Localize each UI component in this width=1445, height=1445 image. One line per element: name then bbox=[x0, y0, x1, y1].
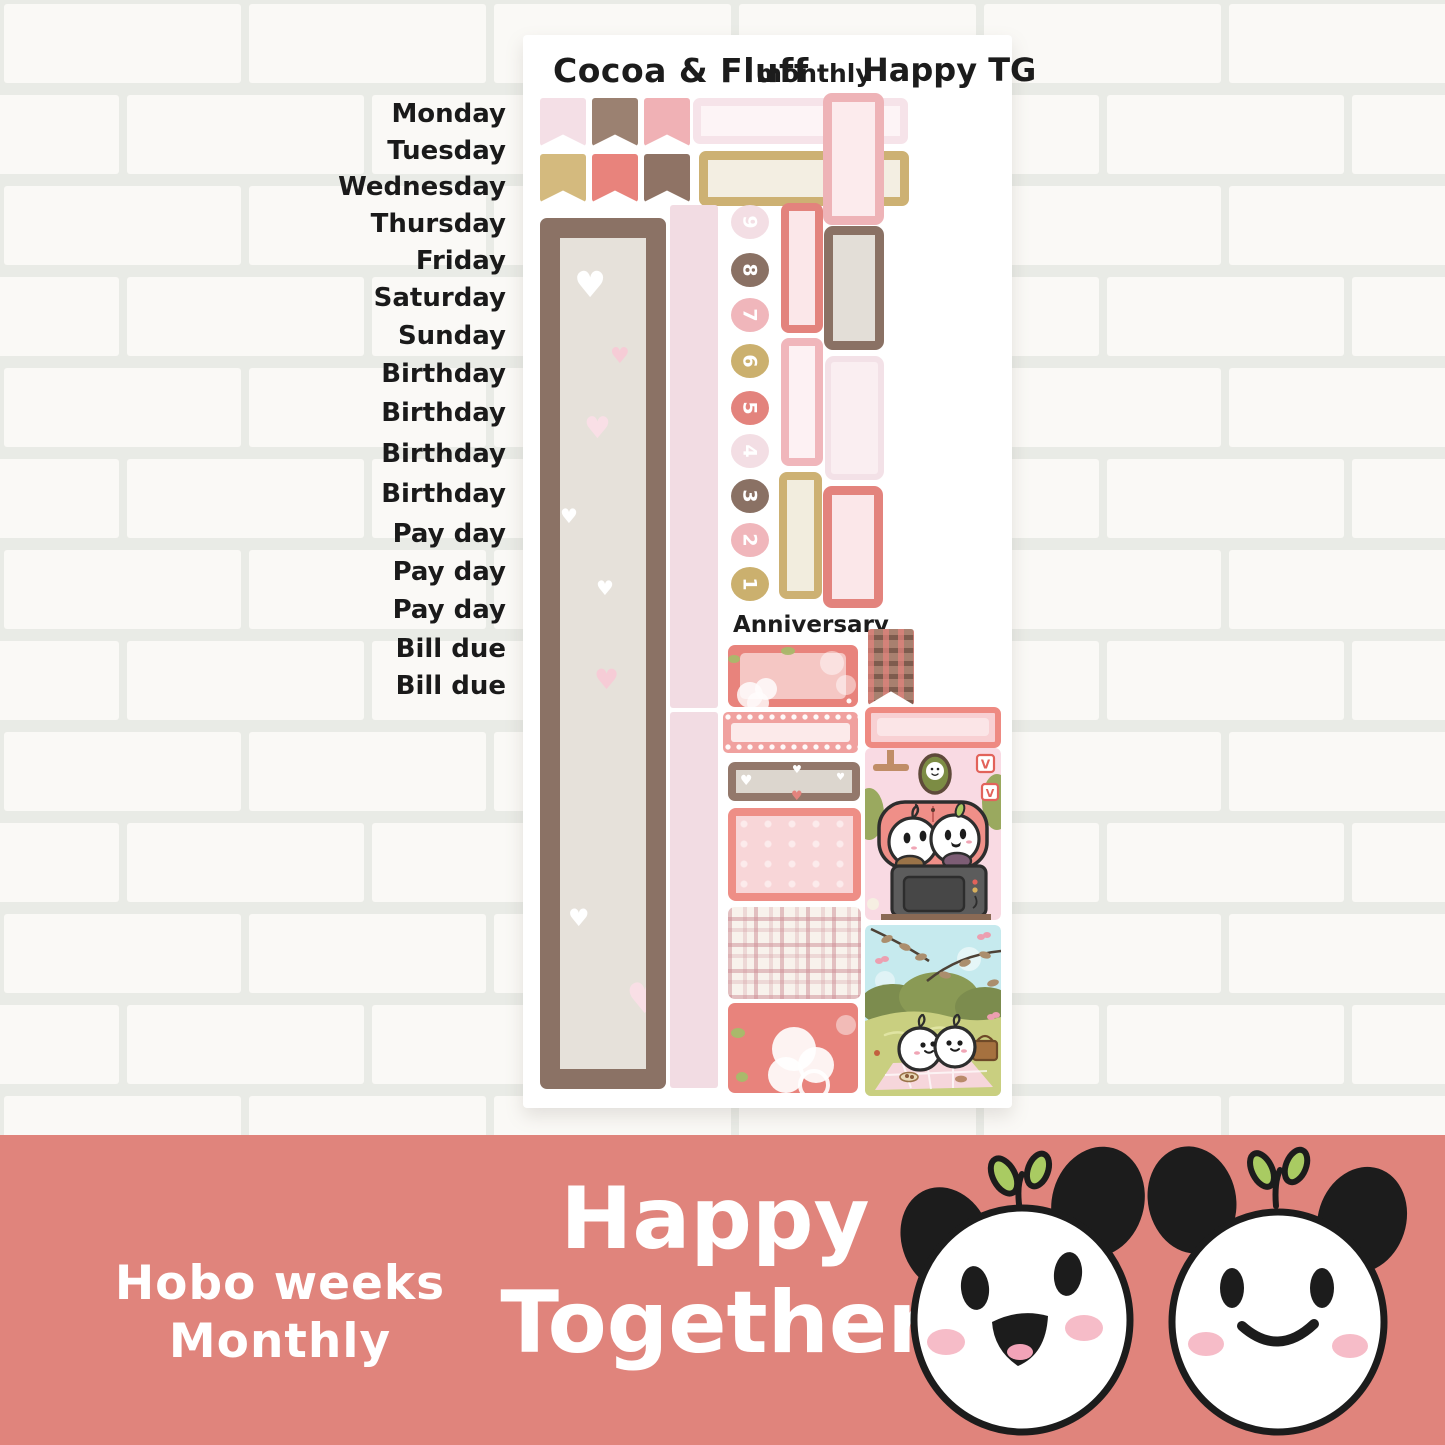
heart-icon: ♥ bbox=[836, 773, 845, 783]
lace-trim bbox=[723, 743, 858, 752]
sheet-kit-type: monthly bbox=[756, 59, 872, 88]
sprout-icon bbox=[1245, 1149, 1279, 1190]
day-script-sticker: Wednesday bbox=[338, 172, 506, 202]
date-dot-number: 7 bbox=[739, 308, 761, 321]
vertical-box-sticker-pale bbox=[825, 356, 884, 480]
date-dot-sticker: 8 bbox=[731, 253, 769, 287]
flower-box-sticker-top bbox=[728, 645, 858, 707]
heart-icon: ♥ bbox=[791, 790, 803, 803]
date-dot-sticker: 5 bbox=[731, 391, 769, 425]
date-dot-sticker: 3 bbox=[731, 479, 769, 513]
picnic-basket-icon bbox=[973, 1041, 997, 1060]
date-dot-number: 6 bbox=[739, 354, 761, 367]
day-script-sticker: Bill due bbox=[396, 634, 506, 664]
day-script-sticker: Birthday bbox=[381, 439, 506, 469]
tv-scene-sticker: V V bbox=[865, 748, 1001, 920]
plate-icon bbox=[900, 1073, 918, 1082]
food-icon bbox=[955, 1076, 967, 1083]
date-dot-number: 5 bbox=[739, 401, 761, 414]
plaid-box-sticker bbox=[728, 907, 861, 999]
date-dot-number: 8 bbox=[739, 263, 761, 276]
heart-icon: ♥ bbox=[574, 268, 606, 304]
day-script-sticker: Birthday bbox=[381, 359, 506, 389]
eye-icon bbox=[1310, 1268, 1334, 1308]
product-listing-image: { "sheet": { "brand": "Cocoa & Fluff", "… bbox=[0, 0, 1445, 1445]
heart-icon: ♥ bbox=[662, 762, 666, 786]
svg-text:V: V bbox=[986, 787, 995, 800]
flag-sticker bbox=[592, 98, 638, 146]
cheek-icon bbox=[1332, 1334, 1368, 1358]
day-script-sticker: Birthday bbox=[381, 398, 506, 428]
vertical-box-sticker-coral bbox=[823, 486, 883, 608]
vertical-box-sticker-brown bbox=[824, 226, 884, 350]
date-dot-sticker: 2 bbox=[731, 523, 769, 557]
flower-box-sticker-bottom bbox=[728, 1003, 858, 1093]
pink-strip-sticker-bottom bbox=[670, 712, 718, 1088]
panda-face-icon bbox=[885, 1140, 1158, 1432]
heart-icon: ♥ bbox=[560, 506, 578, 526]
sheet-theme-name: Happy TG bbox=[862, 51, 1036, 89]
day-script-sticker: Pay day bbox=[393, 557, 506, 587]
heart-icon: ♥ bbox=[610, 346, 630, 368]
slim-box-sticker-pink bbox=[781, 338, 823, 466]
food-icon bbox=[874, 1050, 880, 1056]
lace-box-inner bbox=[731, 723, 850, 742]
lace-box-sticker bbox=[723, 712, 858, 753]
day-script-sticker: Monday bbox=[391, 99, 506, 129]
panda-face-icon bbox=[1138, 1140, 1421, 1432]
lace-trim bbox=[723, 713, 858, 722]
day-script-sticker: Birthday bbox=[381, 479, 506, 509]
coral-floral-box-sticker bbox=[728, 808, 861, 901]
cheek-icon bbox=[1188, 1332, 1224, 1356]
heart-icon: ♥ bbox=[792, 764, 802, 775]
svg-text:V: V bbox=[981, 758, 991, 772]
heart-icon: ♥ bbox=[740, 774, 753, 788]
day-script-sticker: Sunday bbox=[398, 321, 506, 351]
flag-sticker bbox=[644, 98, 690, 146]
dotted-label-box-sticker bbox=[865, 707, 1001, 748]
flag-sticker bbox=[540, 98, 586, 146]
plaid-flag-sticker bbox=[868, 629, 914, 705]
date-dot-number: 2 bbox=[739, 533, 761, 546]
bottom-banner: Hobo weeks Monthly Happy Together bbox=[0, 1135, 1445, 1445]
date-dot-sticker: 6 bbox=[731, 344, 769, 378]
date-dot-number: 4 bbox=[739, 444, 761, 457]
kit-name-text: Hobo weeks Monthly bbox=[90, 1255, 470, 1371]
flower-icon bbox=[728, 1003, 858, 1093]
flag-sticker bbox=[540, 154, 586, 202]
slim-box-sticker-coral bbox=[781, 203, 823, 333]
day-script-sticker: Saturday bbox=[374, 283, 506, 313]
sprout-icon bbox=[985, 1154, 1022, 1198]
heart-icon: ♥ bbox=[626, 978, 664, 1020]
date-dot-sticker: 7 bbox=[731, 298, 769, 332]
date-dot-number: 9 bbox=[739, 215, 761, 228]
date-dot-number: 1 bbox=[739, 577, 761, 590]
date-dot-sticker: 9 bbox=[731, 205, 769, 239]
tongue-icon bbox=[1007, 1344, 1033, 1360]
flower-icon bbox=[728, 645, 858, 707]
cheek-icon bbox=[927, 1329, 965, 1355]
day-script-sticker: Tuesday bbox=[387, 136, 506, 166]
flag-sticker bbox=[644, 154, 690, 202]
sticker-sheet: Cocoa & Fluff monthly Happy TG 987654321… bbox=[523, 35, 1012, 1108]
heart-icon: ♥ bbox=[584, 414, 611, 444]
sprout-icon bbox=[1023, 1151, 1053, 1190]
picnic-scene-sticker bbox=[865, 925, 1001, 1096]
day-script-sticker: Bill due bbox=[396, 671, 506, 701]
slim-box-sticker-gold bbox=[779, 472, 822, 599]
sprout-icon bbox=[1280, 1146, 1311, 1185]
anniversary-label: Anniversary bbox=[733, 612, 889, 638]
brown-heart-box-sticker: ♥ ♥ ♥ ♥ bbox=[728, 762, 860, 801]
date-dot-sticker: 1 bbox=[731, 567, 769, 601]
dotted-label-box-inner bbox=[877, 718, 989, 736]
popcorn-icon bbox=[867, 898, 879, 910]
kit-name-line1: Hobo weeks bbox=[90, 1255, 470, 1313]
kit-name-line2: Monthly bbox=[90, 1313, 470, 1371]
heart-icon: ♥ bbox=[568, 906, 590, 930]
date-dot-number: 3 bbox=[739, 489, 761, 502]
day-script-sticker: Pay day bbox=[393, 595, 506, 625]
date-dot-sticker: 4 bbox=[731, 434, 769, 468]
day-script-sticker: Friday bbox=[416, 246, 506, 276]
panda-mascots bbox=[880, 1140, 1445, 1445]
eye-icon bbox=[1220, 1268, 1244, 1308]
heart-icon: ♥ bbox=[596, 578, 614, 598]
day-script-sticker: Thursday bbox=[371, 209, 506, 239]
heart-icon: ♥ bbox=[594, 666, 619, 694]
cheek-icon bbox=[1065, 1315, 1103, 1341]
vertical-box-sticker-pink bbox=[823, 93, 884, 225]
character-icon bbox=[935, 1027, 975, 1067]
flag-sticker bbox=[592, 154, 638, 202]
day-script-sticker: Pay day bbox=[393, 519, 506, 549]
pink-strip-sticker-top bbox=[670, 205, 718, 708]
monthly-column-sticker: ♥♥♥♥♥♥♥♥♥♥ bbox=[540, 218, 666, 1089]
